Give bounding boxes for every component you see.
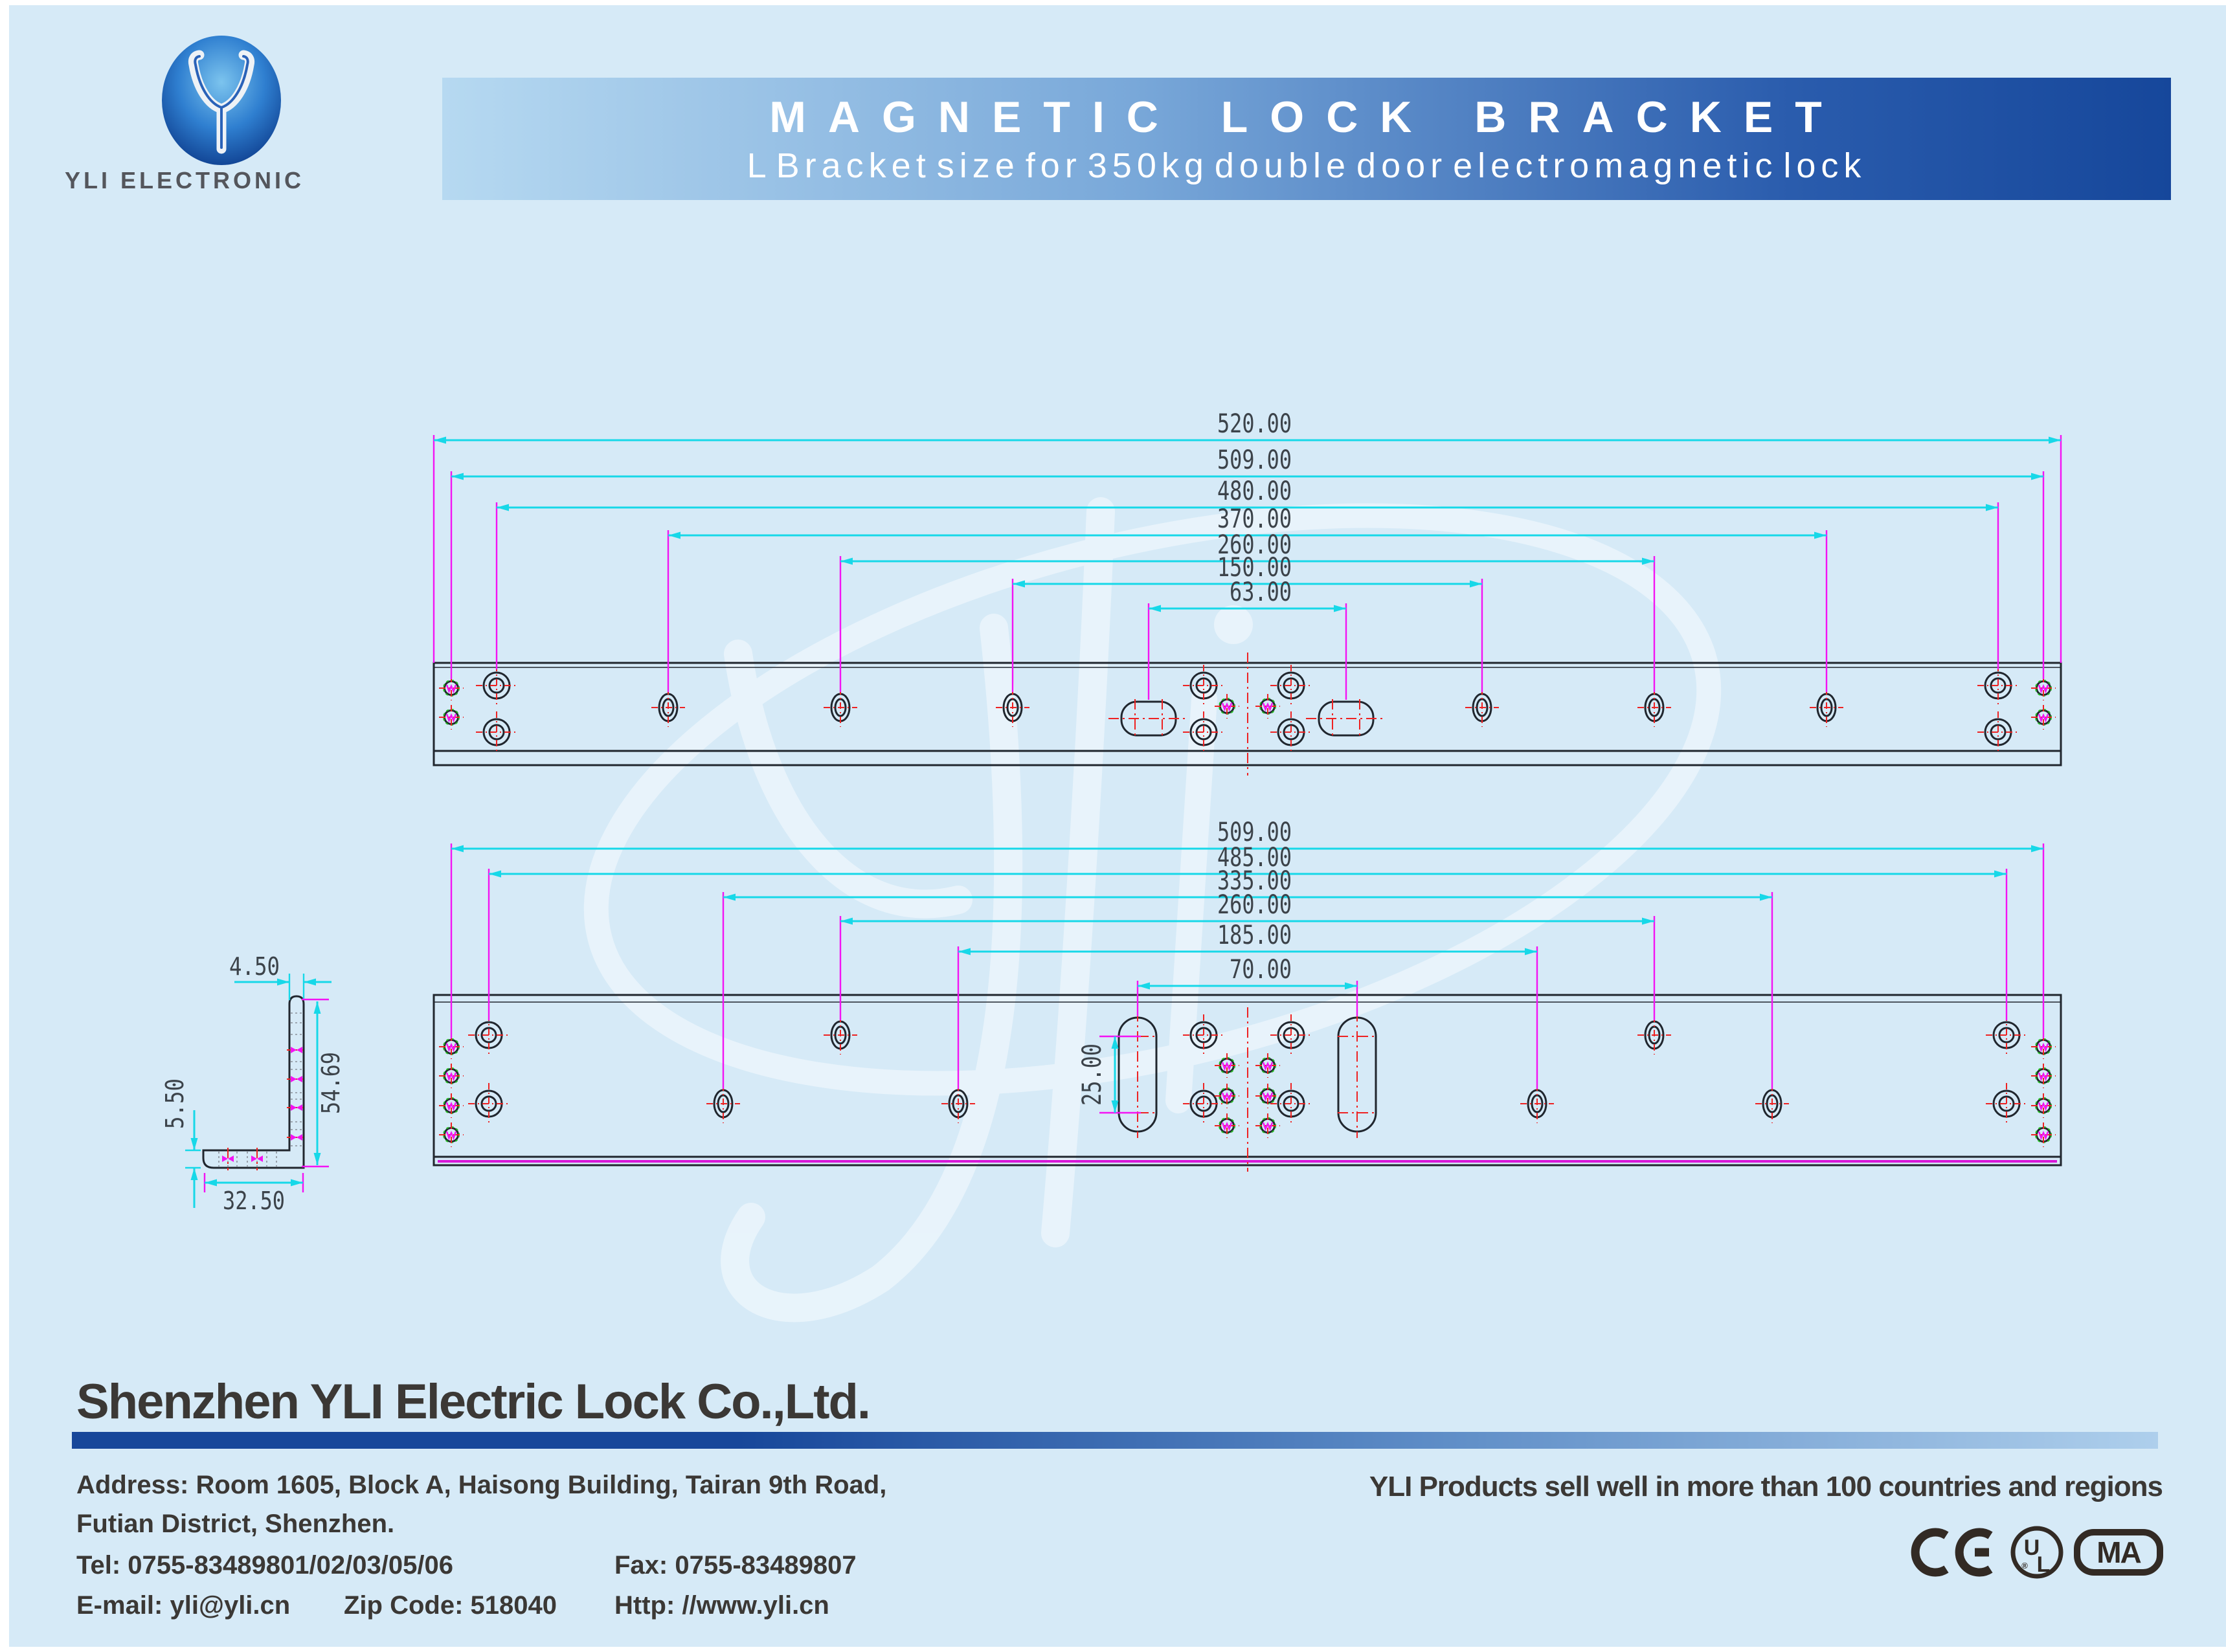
dim-label: 5.50 <box>161 1078 189 1129</box>
fax-text: Fax: 0755-83489807 <box>614 1551 857 1580</box>
email-text: E-mail: yli@yli.cn <box>76 1591 290 1620</box>
tel-text: Tel: 0755-83489801/02/03/05/06 <box>76 1551 453 1580</box>
slot-dim-label: 25.00 <box>1077 1044 1107 1106</box>
dim-label: 70.00 <box>1230 955 1292 985</box>
bottom-view-drawing: 25.00 509.00 485.00 335.00 <box>434 818 2061 1172</box>
zip-text: Zip Code: 518040 <box>344 1591 557 1620</box>
dim-label: 480.00 <box>1217 476 1292 506</box>
slogan-text: YLI Products sell well in more than 100 … <box>1198 1471 2163 1503</box>
dim-label: 520.00 <box>1217 409 1292 439</box>
page-margin-top <box>0 0 2226 5</box>
website-text: Http: //www.yli.cn <box>614 1591 829 1620</box>
dim-label: 509.00 <box>1217 445 1292 475</box>
yli-watermark <box>538 414 1768 1308</box>
ma-letters: MA <box>2097 1535 2141 1569</box>
ul-letter-l: L <box>2037 1552 2051 1577</box>
dim-label: 185.00 <box>1217 921 1292 950</box>
dim-label: 260.00 <box>1217 890 1292 920</box>
footer-divider-bar <box>72 1432 2158 1449</box>
ma-mark-icon: MA <box>2077 1532 2160 1572</box>
top-view-drawing: 520.00 509.00 480.00 370.00 260.00 150.0… <box>434 409 2061 776</box>
certification-marks: U L ® MA <box>1910 1521 2175 1586</box>
dim-label: 63.00 <box>1230 577 1292 607</box>
company-name: Shenzhen YLI Electric Lock Co.,Ltd. <box>76 1374 870 1430</box>
page-margin-bottom <box>0 1647 2226 1652</box>
dim-label: 54.69 <box>317 1052 345 1114</box>
page-margin-left <box>0 0 9 1652</box>
datasheet-page: YLI ELECTRONIC MAGNETIC LOCK BRACKET L B… <box>0 0 2226 1652</box>
registered-symbol: ® <box>2021 1561 2028 1570</box>
dim-label: 32.50 <box>223 1187 285 1215</box>
address-line2: Futian District, Shenzhen. <box>76 1510 394 1539</box>
address-line1: Address: Room 1605, Block A, Haisong Bui… <box>76 1471 886 1500</box>
ce-mark-icon <box>1915 1532 1990 1572</box>
side-view-drawing: 4.50 54.69 5.50 32.50 <box>161 952 345 1215</box>
dim-label: 4.50 <box>229 952 280 981</box>
ul-mark-icon: U L ® <box>2013 1528 2061 1577</box>
